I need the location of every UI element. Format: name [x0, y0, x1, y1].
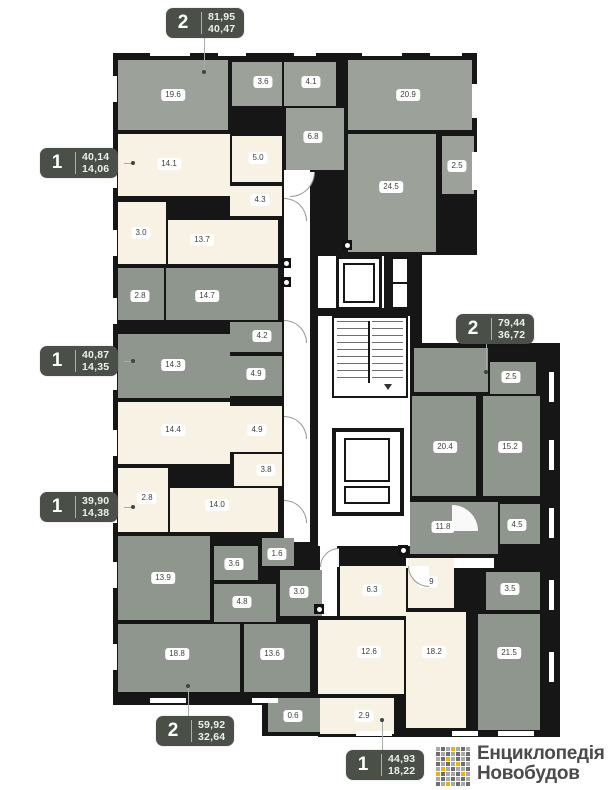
room: 3.8	[234, 454, 282, 486]
stair-divider	[368, 321, 370, 383]
room-area-label: 14.7	[195, 290, 219, 302]
room-area-label: 2.9	[354, 710, 373, 722]
leader-dot	[380, 718, 384, 722]
apartment-badge[interactable]: 140,8714,35	[40, 346, 118, 376]
room-area-label: 14.0	[205, 499, 229, 511]
room-area-label: 14.1	[157, 158, 181, 170]
logo-grid-square	[461, 777, 465, 781]
room: 3.6	[232, 62, 282, 106]
logo-grid-square	[441, 762, 445, 766]
window-opening	[252, 698, 278, 703]
logo-grid-square	[446, 757, 450, 761]
floor-plan: Енциклопедія Новобудов 19.63.64.16.820.9…	[0, 0, 609, 790]
stairwell	[332, 316, 408, 398]
logo-grid-square	[441, 747, 445, 751]
window-opening	[112, 430, 117, 456]
window-opening	[112, 562, 117, 588]
logo-grid-square	[456, 757, 460, 761]
window-opening	[112, 298, 117, 324]
logo-grid-square	[446, 767, 450, 771]
apartment-total-area: 79,44	[498, 317, 525, 329]
room-area-label: 6.8	[303, 131, 322, 143]
room-area-label: 2.5	[447, 160, 466, 172]
room-area-label: 3.8	[256, 464, 275, 476]
shaft-divider	[393, 282, 407, 284]
room: 4.9	[230, 406, 282, 452]
apartment-rooms-count: 1	[40, 148, 69, 178]
apartment-total-area: 59,92	[198, 719, 225, 731]
window-opening	[112, 644, 117, 670]
room: 14.0	[170, 488, 278, 532]
stair-flight	[337, 321, 368, 383]
logo-grid-square	[436, 747, 440, 751]
apartment-badge[interactable]: 281,9540,47	[166, 8, 244, 38]
room: 15.2	[483, 396, 540, 496]
apartment-rooms-count: 2	[166, 8, 195, 38]
logo-grid-square	[466, 747, 470, 751]
badge-divider	[75, 152, 76, 174]
logo-grid-square	[466, 772, 470, 776]
room: 13.6	[244, 624, 310, 692]
badge-values: 39,9014,38	[80, 492, 118, 522]
window-opening	[549, 652, 554, 682]
logo-grid-square	[461, 767, 465, 771]
logo-grid-square	[466, 767, 470, 771]
room-area-label: 24.5	[379, 181, 403, 193]
apartment-living-area: 14,06	[82, 163, 109, 175]
room: 6.3	[340, 566, 406, 616]
utility-shaft	[332, 428, 404, 516]
room-area-label: 14.4	[161, 424, 185, 436]
room: 4.2	[230, 322, 282, 352]
room: 4.9	[230, 356, 282, 396]
window-opening	[549, 508, 554, 538]
room-area-label: 3.6	[253, 76, 272, 88]
leader-dot	[131, 505, 135, 509]
room-area-label: 20.4	[433, 441, 457, 453]
room: 4.5	[500, 504, 540, 544]
leader-dot	[131, 359, 135, 363]
room: 14.7	[166, 268, 278, 320]
logo-grid-square	[451, 757, 455, 761]
badge-divider	[191, 720, 192, 742]
window-opening	[112, 230, 117, 256]
room: 20.9	[348, 60, 472, 130]
room	[414, 348, 488, 392]
room-area-label: 13.7	[190, 234, 214, 246]
logo-grid-square	[461, 757, 465, 761]
room: 2.5	[442, 136, 474, 194]
window-opening	[294, 51, 316, 56]
room-area-label: 3.6	[224, 558, 243, 570]
logo-grid-square	[436, 777, 440, 781]
apartment-rooms-count: 1	[40, 492, 69, 522]
apartment-total-area: 44,93	[388, 753, 415, 765]
apartment-badge[interactable]: 140,1414,06	[40, 148, 118, 178]
room-area-label: 4.9	[246, 368, 265, 380]
room: 13.7	[168, 220, 278, 264]
logo-grid-square	[436, 767, 440, 771]
room-area-label: 2.8	[130, 290, 149, 302]
window-opening	[498, 731, 534, 736]
leader-line	[486, 344, 487, 372]
logo-grid-square	[441, 772, 445, 776]
logo-grid-square	[441, 757, 445, 761]
apartment-badge[interactable]: 139,9014,38	[40, 492, 118, 522]
apartment-total-area: 40,87	[82, 349, 109, 361]
room: 18.2	[406, 612, 466, 728]
room: 24.5	[348, 134, 436, 252]
room: 0.6	[268, 698, 324, 732]
room-area-label: 4.3	[250, 194, 269, 206]
logo-text: Енциклопедія Новобудов	[477, 744, 605, 783]
room: 3.6	[214, 546, 258, 580]
window-opening	[112, 76, 117, 102]
apartment-living-area: 18,22	[388, 765, 415, 777]
room: 20.4	[412, 396, 476, 496]
badge-values: 81,9540,47	[206, 8, 244, 38]
logo-line-1: Енциклопедія	[477, 744, 605, 764]
shaft-cell	[344, 438, 390, 482]
vent-icon	[398, 545, 408, 555]
room-area-label: 15.2	[498, 441, 522, 453]
window-opening	[356, 731, 392, 736]
logo-line-2: Новобудов	[477, 764, 605, 784]
apartment-total-area: 81,95	[208, 11, 235, 23]
room-area-label: 5.0	[248, 152, 267, 164]
room-area-label: 21.5	[497, 647, 521, 659]
room: 2.5	[490, 362, 536, 394]
room-area-label: 4.9	[247, 424, 266, 436]
elevator-car	[343, 263, 375, 303]
apartment-rooms-count: 2	[156, 716, 185, 746]
logo-grid-square	[461, 762, 465, 766]
service-shaft	[390, 256, 410, 310]
room: 4.3	[230, 186, 282, 216]
logo-grid-square	[436, 772, 440, 776]
room: 3.5	[486, 572, 540, 610]
badge-values: 44,9318,22	[386, 750, 424, 780]
apartment-living-area: 14,38	[82, 507, 109, 519]
room-area-label: 3.0	[289, 586, 308, 598]
room-area-label: 4.1	[301, 76, 320, 88]
apartment-rooms-count: 1	[346, 750, 375, 780]
room: 4.1	[284, 62, 336, 106]
badge-divider	[75, 496, 76, 518]
logo-grid-square	[466, 752, 470, 756]
vent-icon	[281, 277, 291, 287]
logo-grid-square	[441, 767, 445, 771]
logo-grid-square	[446, 747, 450, 751]
brand-logo: Енциклопедія Новобудов	[436, 744, 605, 786]
room: 2.8	[118, 268, 164, 320]
window-opening	[472, 152, 477, 190]
badge-values: 79,4436,72	[496, 314, 534, 344]
room: 12.6	[318, 620, 404, 694]
logo-grid-square	[446, 772, 450, 776]
window-opening	[430, 51, 462, 56]
room: 14.3	[118, 334, 230, 398]
logo-grid-square	[456, 747, 460, 751]
logo-grid-square	[466, 777, 470, 781]
room: 18.8	[118, 624, 240, 692]
logo-grid-square	[466, 782, 470, 786]
leader-dot	[131, 161, 135, 165]
logo-grid-square	[456, 782, 460, 786]
shaft-cell	[344, 486, 390, 504]
logo-grid-square	[461, 782, 465, 786]
room: 6.8	[286, 108, 344, 170]
logo-grid-square	[441, 752, 445, 756]
window-opening	[549, 440, 554, 470]
logo-grid-square	[461, 747, 465, 751]
window-opening	[218, 51, 246, 56]
room-area-label: 1.6	[267, 548, 286, 560]
logo-grid-square	[446, 762, 450, 766]
room-area-label: 13.6	[260, 648, 284, 660]
room-area-label: 3.5	[500, 583, 519, 595]
window-opening	[549, 372, 554, 402]
logo-grid-square	[466, 757, 470, 761]
logo-grid-square	[451, 752, 455, 756]
room-area-label: 3.0	[131, 227, 150, 239]
room-area-label: 18.8	[165, 648, 189, 660]
logo-grid-square	[456, 752, 460, 756]
room: 14.1	[118, 134, 230, 196]
room-area-label: 20.9	[396, 89, 420, 101]
logo-grid-square	[436, 762, 440, 766]
logo-grid-square	[456, 767, 460, 771]
logo-grid-square	[446, 777, 450, 781]
apartment-total-area: 40,14	[82, 151, 109, 163]
room: 13.9	[118, 536, 210, 620]
vent-icon	[281, 258, 291, 268]
room-area-label: 14.3	[161, 359, 185, 371]
logo-grid-square	[461, 772, 465, 776]
badge-divider	[201, 12, 202, 34]
logo-grid-square	[446, 782, 450, 786]
room-area-label: 0.6	[283, 710, 302, 722]
room-area-label: 2.8	[137, 492, 156, 504]
elevator	[336, 256, 382, 310]
logo-grid-square	[456, 762, 460, 766]
leader-dot	[484, 370, 488, 374]
room-area-label: 19.6	[161, 89, 185, 101]
window-opening	[452, 731, 478, 736]
corridor	[284, 170, 310, 542]
logo-grid-square	[456, 777, 460, 781]
window-opening	[549, 580, 554, 610]
leader-line	[382, 720, 383, 750]
stair-flight	[372, 321, 403, 383]
logo-grid-square	[451, 747, 455, 751]
apartment-living-area: 14,35	[82, 361, 109, 373]
stair-direction-arrow	[384, 384, 392, 390]
badge-values: 59,9232,64	[196, 716, 234, 746]
room-area-label: 4.8	[232, 596, 251, 608]
leader-line	[204, 38, 205, 72]
room: 1.6	[262, 538, 294, 566]
logo-grid-square	[451, 777, 455, 781]
room: 19.6	[118, 60, 228, 130]
room-area-label: 18.2	[422, 646, 446, 658]
apartment-badge[interactable]: 259,9232,64	[156, 716, 234, 746]
logo-grid-square	[451, 762, 455, 766]
logo-grid-square	[466, 762, 470, 766]
badge-divider	[491, 318, 492, 340]
room-area-label: 12.6	[357, 646, 381, 658]
logo-grid-square	[436, 752, 440, 756]
room: 5.0	[232, 136, 282, 182]
badge-values: 40,1414,06	[80, 148, 118, 178]
window-opening	[362, 51, 402, 56]
logo-grid-square	[441, 777, 445, 781]
apartment-living-area: 32,64	[198, 731, 225, 743]
vent-icon	[342, 240, 352, 250]
badge-values: 40,8714,35	[80, 346, 118, 376]
logo-grid-square	[461, 752, 465, 756]
room: 3.0	[118, 202, 166, 264]
logo-grid-square	[456, 772, 460, 776]
room: 4.8	[214, 584, 276, 622]
logo-grid-square	[441, 782, 445, 786]
logo-grid-square	[436, 757, 440, 761]
vent-icon	[314, 604, 324, 614]
logo-grid-icon	[436, 747, 470, 786]
apartment-rooms-count: 1	[40, 346, 69, 376]
logo-grid-square	[446, 752, 450, 756]
logo-grid-square	[451, 772, 455, 776]
room-area-label: 2.5	[501, 371, 520, 383]
room-area-label: 4.2	[252, 330, 271, 342]
apartment-badge[interactable]: 279,4436,72	[456, 314, 534, 344]
room-area-label: 13.9	[151, 572, 175, 584]
badge-divider	[75, 350, 76, 372]
logo-grid-square	[436, 782, 440, 786]
apartment-living-area: 40,47	[208, 23, 235, 35]
window-opening	[150, 51, 190, 56]
room-area-label: 4.5	[507, 519, 526, 531]
window-opening	[472, 84, 477, 118]
room: 2.8	[118, 468, 168, 532]
room: 14.4	[118, 402, 230, 464]
apartment-total-area: 39,90	[82, 495, 109, 507]
room-area-label: 6.3	[362, 584, 381, 596]
apartment-badge[interactable]: 144,9318,22	[346, 750, 424, 780]
window-opening	[150, 698, 186, 703]
apartment-rooms-count: 2	[456, 314, 485, 344]
leader-dot	[202, 70, 206, 74]
logo-grid-square	[451, 782, 455, 786]
leader-dot	[186, 684, 190, 688]
badge-divider	[381, 754, 382, 776]
apartment-living-area: 36,72	[498, 329, 525, 341]
logo-grid-square	[451, 767, 455, 771]
room: 21.5	[478, 614, 540, 730]
leader-line	[188, 686, 189, 716]
